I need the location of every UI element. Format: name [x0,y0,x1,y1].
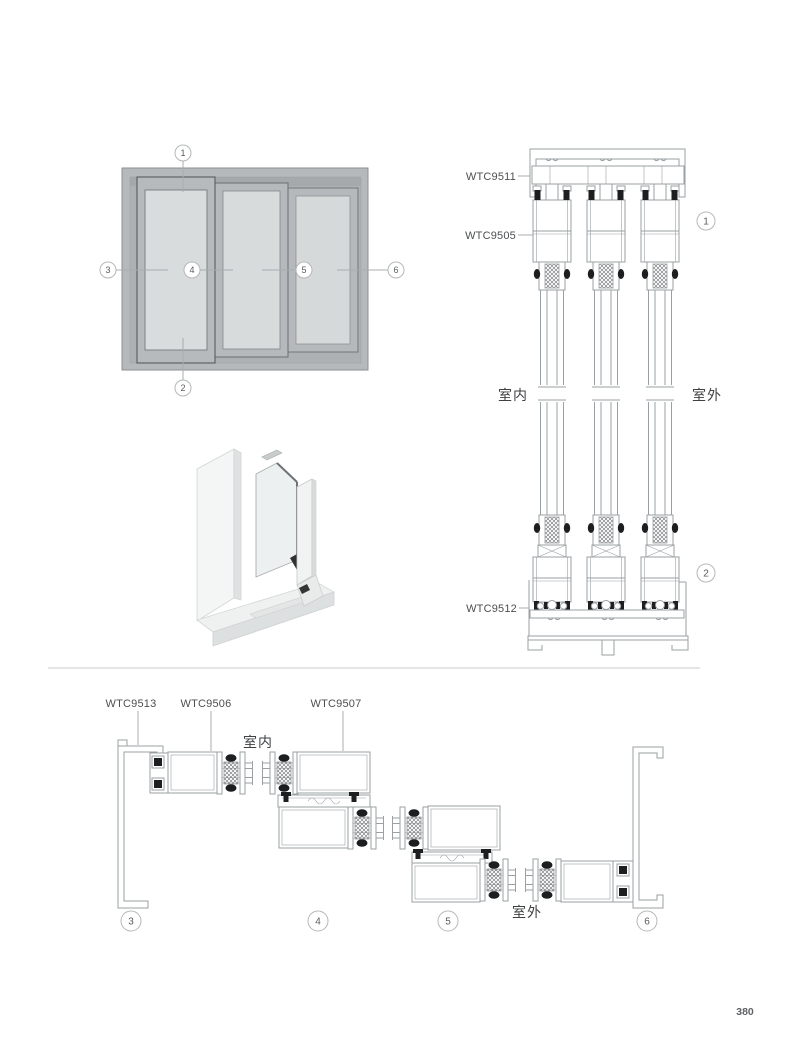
glass-pane-3d [256,463,297,577]
sill-frame-base [528,636,688,640]
glass-row1 [245,759,270,787]
label-sash-profile: WTC9505 [465,230,516,242]
callout-2-num: 2 [180,383,185,393]
callout-6: 6 [388,262,404,278]
vertical-section: WTC9511 WTC9505 WTC9512 室内 室外 1 2 [465,149,722,655]
label-indoor-vertical: 室内 [498,387,528,403]
sash-sill-1 [533,515,571,612]
callout-1: 1 [175,145,191,161]
sash-head-3 [641,186,679,290]
sash-sill-3 [641,515,679,612]
glazing-1 [538,290,566,515]
sash-stile-1 [168,752,217,793]
callout-1-num: 1 [180,148,185,158]
horizontal-section: WTC9513 WTC9506 WTC9507 室内 室外 3 4 5 6 [106,698,663,931]
glazing-3 [646,290,674,515]
callout-5-num: 5 [301,265,306,275]
glazing-clip [262,450,282,460]
callout-section-3: 3 [121,911,141,931]
sash-profile-3d [297,479,312,585]
label-sill-frame: WTC9512 [466,603,517,615]
label-outdoor-vertical: 室外 [692,387,722,403]
sash-stile-2 [297,752,370,793]
callout-4: 4 [184,262,200,278]
callout-section-4-num: 4 [315,917,321,928]
right-jamb-profile [633,747,663,908]
sash-stile-5 [412,863,480,902]
sash-stile-3 [279,807,348,848]
catalog-page: 1 2 3 4 5 6 [0,0,800,1042]
sash-stile-4 [428,806,500,850]
callout-section-3-num: 3 [128,917,134,928]
sash-stile-6 [561,861,613,902]
label-sash-h1: WTC9506 [181,698,232,710]
callout-section-5: 5 [438,911,458,931]
callout-6-num: 6 [393,265,398,275]
label-indoor-horizontal: 室内 [243,734,273,750]
glass-row2 [376,814,400,842]
callout-section-4: 4 [308,911,328,931]
label-outdoor-horizontal: 室外 [512,904,542,920]
callout-section-5-num: 5 [445,917,451,928]
label-side-frame: WTC9513 [106,698,157,710]
sash-head-1 [533,186,571,290]
callout-5: 5 [296,262,312,278]
callout-section-1-num: 1 [703,217,709,228]
callout-section-2-num: 2 [703,569,709,580]
sash-sill-2 [587,515,625,612]
label-sash-h2: WTC9507 [311,698,362,710]
callout-section-2: 2 [697,564,715,582]
callout-section-6-num: 6 [644,917,650,928]
window-elevation: 1 2 3 4 5 6 [100,145,404,396]
callout-section-1: 1 [697,212,715,230]
sill-frame-rail [530,610,684,618]
glazing-2 [592,290,620,515]
callout-3: 3 [100,262,116,278]
sash-head-2 [587,186,625,290]
callout-3-num: 3 [105,265,110,275]
glass-row3 [508,866,533,894]
corner-3d-view [197,449,334,646]
jamb-face [197,449,234,621]
label-head-frame: WTC9511 [466,171,516,183]
callout-2: 2 [175,380,191,396]
page-canvas: 1 2 3 4 5 6 [0,0,800,1042]
callout-section-6: 6 [637,911,657,931]
callout-4-num: 4 [189,265,194,275]
head-frame-rail [532,166,684,184]
page-number: 380 [736,1006,754,1018]
